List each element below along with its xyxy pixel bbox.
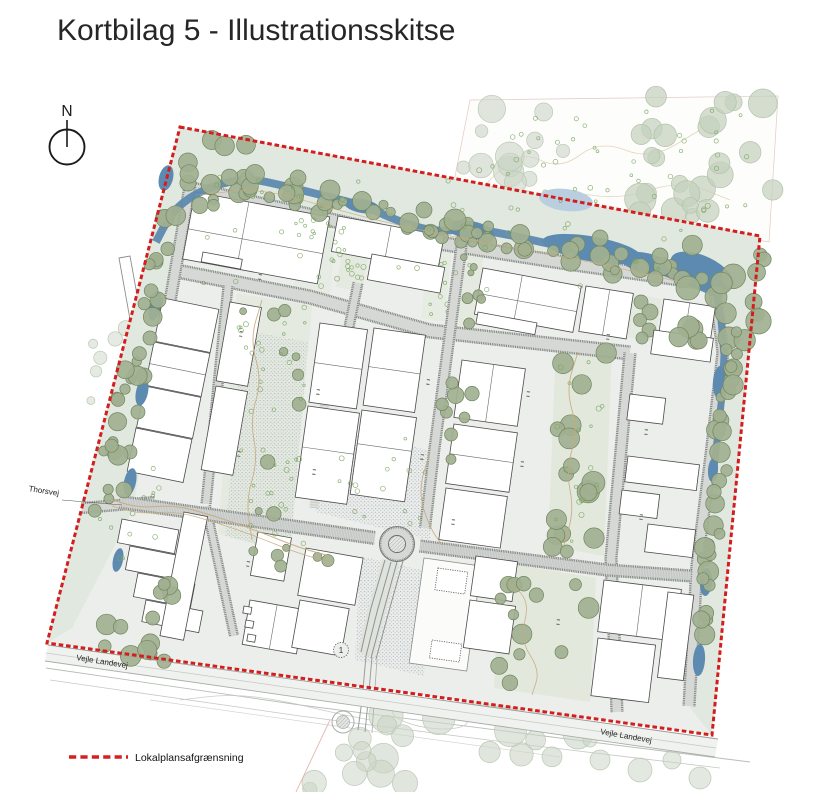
svg-text:Thorsvej: Thorsvej xyxy=(28,484,60,498)
svg-text:Kortbilag 5 - Illustrationsski: Kortbilag 5 - Illustrationsskitse xyxy=(57,14,456,47)
svg-text:1: 1 xyxy=(339,646,344,655)
svg-text:Lokalplansafgrænsning: Lokalplansafgrænsning xyxy=(135,752,244,764)
svg-text:N: N xyxy=(61,103,72,120)
